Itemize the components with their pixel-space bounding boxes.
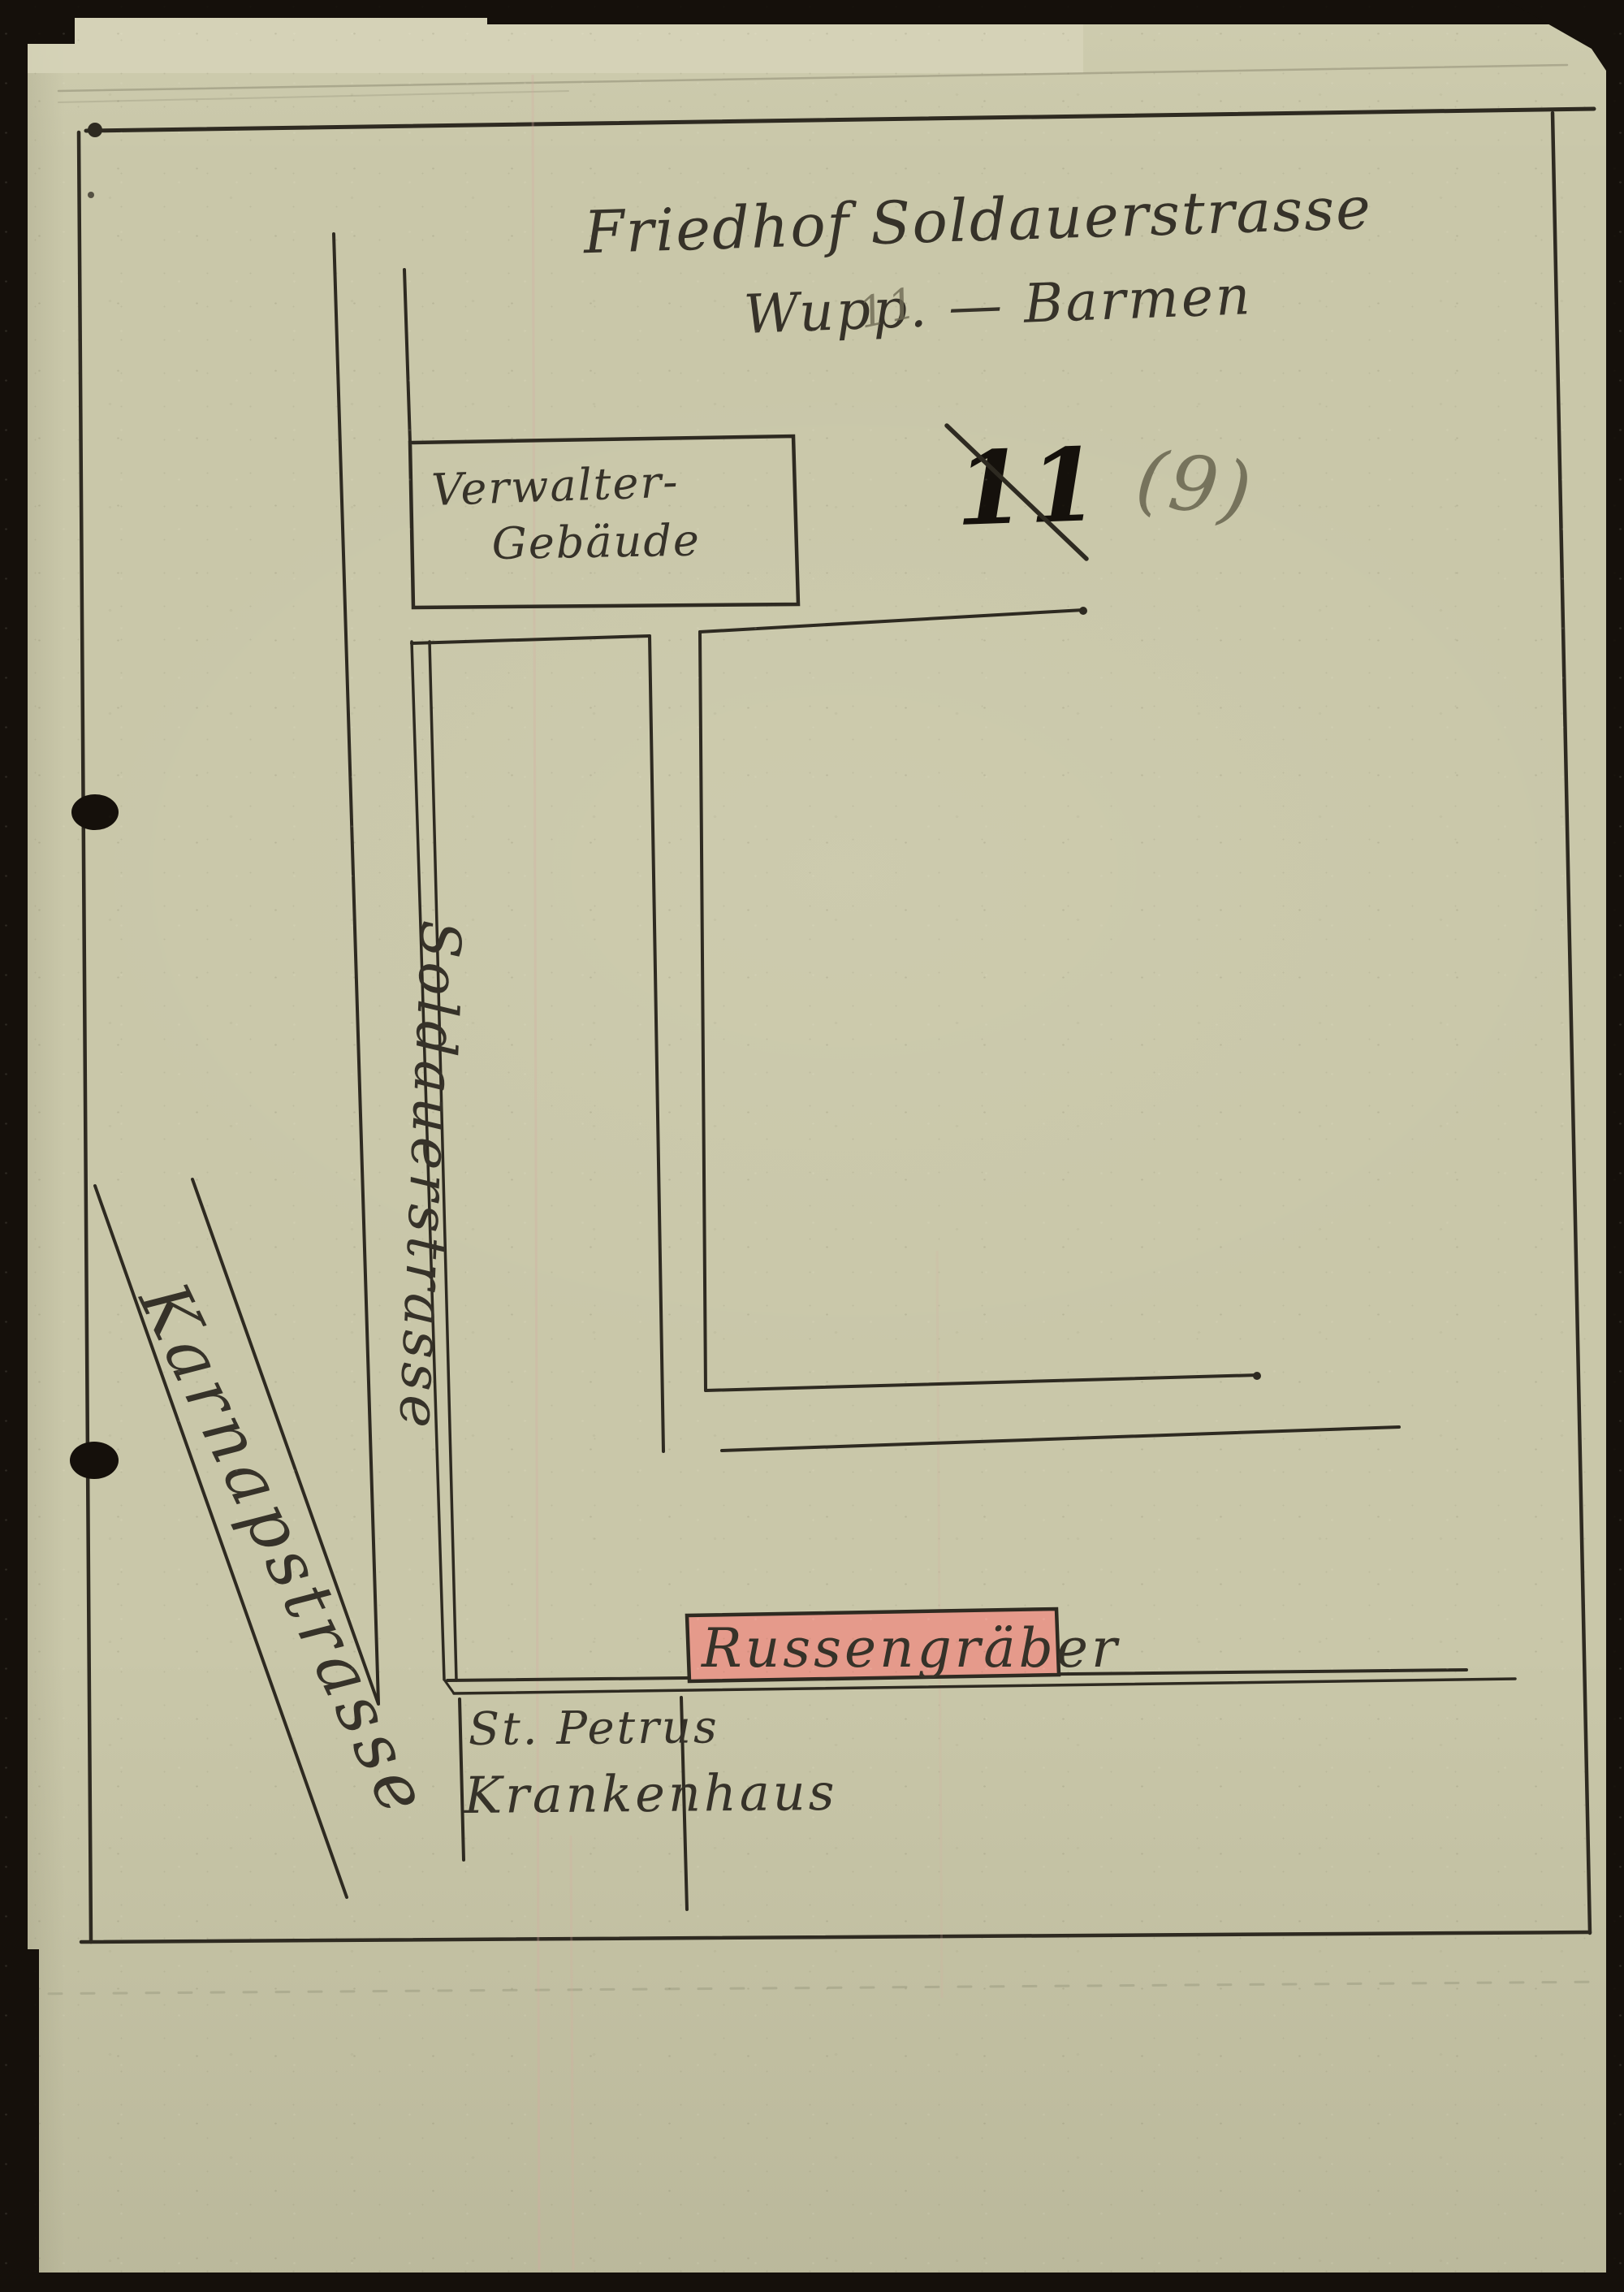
map-drawing: Friedhof Soldauerstrasse Wupp. — Barmen … (0, 0, 1624, 2292)
stroke-end-blob-bottom (1253, 1372, 1261, 1380)
admin-building-label-line2: Gebäude (491, 515, 701, 569)
hospital-label-line1: St. Petrus (469, 1701, 719, 1756)
fold-line-left-2 (571, 1836, 573, 2271)
cemetery-south-path-line (722, 1427, 1399, 1451)
soldauerstrasse-right-upper-line (404, 270, 410, 443)
fold-line-left (533, 75, 539, 2271)
frame-right-line (1553, 113, 1590, 1933)
russian-graves-label: Russengräber (701, 1617, 1121, 1680)
scan-border-top-step (487, 0, 1624, 24)
ink-dot (88, 192, 94, 198)
scan-border-left (0, 0, 28, 2292)
scanned-map-page: Friedhof Soldauerstrasse Wupp. — Barmen … (0, 0, 1624, 2292)
street-label-soldauerstrasse: Soldauerstrasse (386, 919, 472, 1433)
hospital-label-line2: Krankenhaus (463, 1762, 837, 1825)
paper-crease-line (16, 1982, 1616, 1994)
punch-hole-top (71, 794, 119, 830)
scan-border-right (1606, 0, 1624, 2292)
scan-border-left-lower (0, 1949, 39, 2292)
pencil-number-alt: (9) (1131, 435, 1259, 537)
frame-left-line (79, 132, 91, 1942)
punch-hole-bottom (70, 1442, 119, 1479)
admin-building-label-line1: Verwalter- (430, 456, 680, 516)
bottom-street-lower-line (454, 1679, 1515, 1693)
plot-number-crossed: 11 (953, 426, 1104, 549)
frame-bottom-line (81, 1932, 1590, 1942)
grave-field-top-edge (700, 610, 1083, 632)
map-title-line1: Friedhof Soldauerstrasse (581, 174, 1373, 267)
cemetery-boundary-lines (412, 607, 1399, 1451)
map-title-line2: Wupp. — Barmen (743, 264, 1254, 346)
frame-corner-ink-blob (88, 123, 102, 137)
hospital-short-vertical-line (460, 1699, 464, 1860)
frame-top-line (86, 109, 1594, 131)
scan-border-bottom (0, 2273, 1624, 2292)
scan-border-top-left-corner (0, 0, 75, 44)
stroke-end-blob-top (1079, 607, 1087, 615)
grave-field-left-edge (700, 632, 706, 1390)
grave-field-bottom-edge (706, 1375, 1258, 1390)
cemetery-path-west-line (650, 636, 663, 1451)
scan-borders (0, 0, 1624, 2292)
cemetery-north-boundary (412, 636, 650, 643)
faint-scan-line-2 (58, 91, 568, 102)
soldauerstrasse-left-line (334, 234, 378, 1703)
paper-top-edge-strip (28, 18, 1083, 73)
